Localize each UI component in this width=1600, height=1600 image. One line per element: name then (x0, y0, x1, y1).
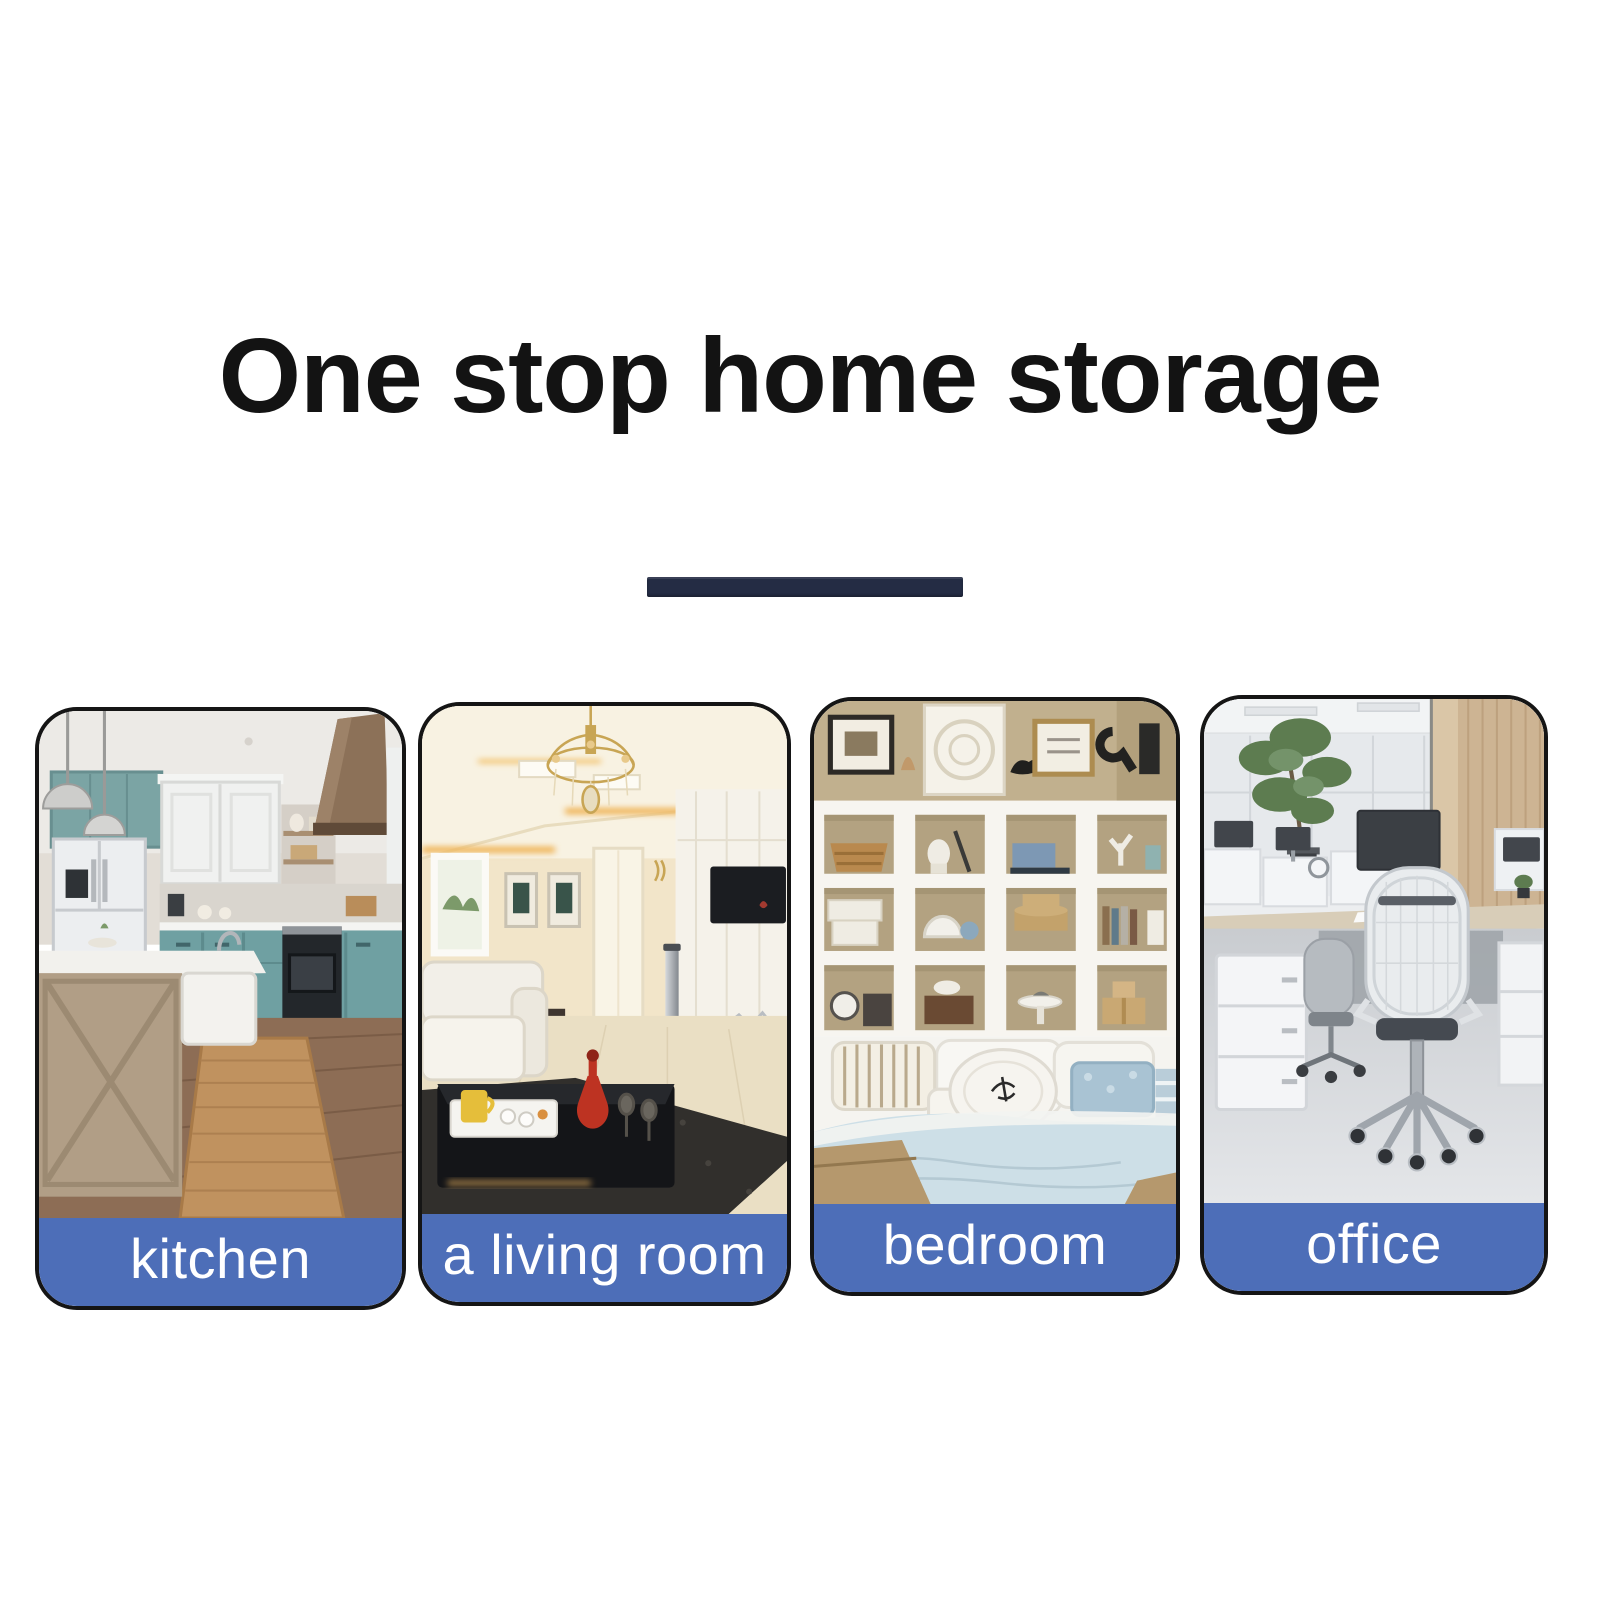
room-cards-row: kitchen (0, 0, 1600, 1600)
bedroom-photo-illustration (814, 701, 1176, 1204)
living-room-photo (422, 706, 787, 1214)
office-chair (1349, 868, 1484, 1171)
living-room-label: a living room (443, 1222, 767, 1287)
bedroom-label-band: bedroom (814, 1204, 1176, 1292)
living-room-photo-illustration (422, 706, 787, 1214)
kitchen-label-band: kitchen (39, 1218, 402, 1306)
office-photo-illustration (1204, 699, 1544, 1203)
striped-pillow (832, 1042, 934, 1109)
bedroom-photo (814, 701, 1176, 1204)
shelving-unit (814, 801, 1176, 1037)
kitchen-label: kitchen (130, 1226, 311, 1291)
sofa (422, 962, 547, 1080)
office-label-band: office (1204, 1203, 1544, 1291)
promo-image: One stop home storage (0, 0, 1600, 1600)
card-office: office (1200, 695, 1548, 1295)
office-photo (1204, 699, 1544, 1203)
living-room-label-band: a living room (422, 1214, 787, 1302)
card-kitchen: kitchen (35, 707, 406, 1310)
kitchen-photo-illustration (39, 711, 402, 1218)
bedroom-label: bedroom (883, 1212, 1108, 1277)
kitchen-photo (39, 711, 402, 1218)
card-bedroom: bedroom (810, 697, 1180, 1296)
office-label: office (1306, 1211, 1442, 1276)
card-living-room: a living room (418, 702, 791, 1306)
